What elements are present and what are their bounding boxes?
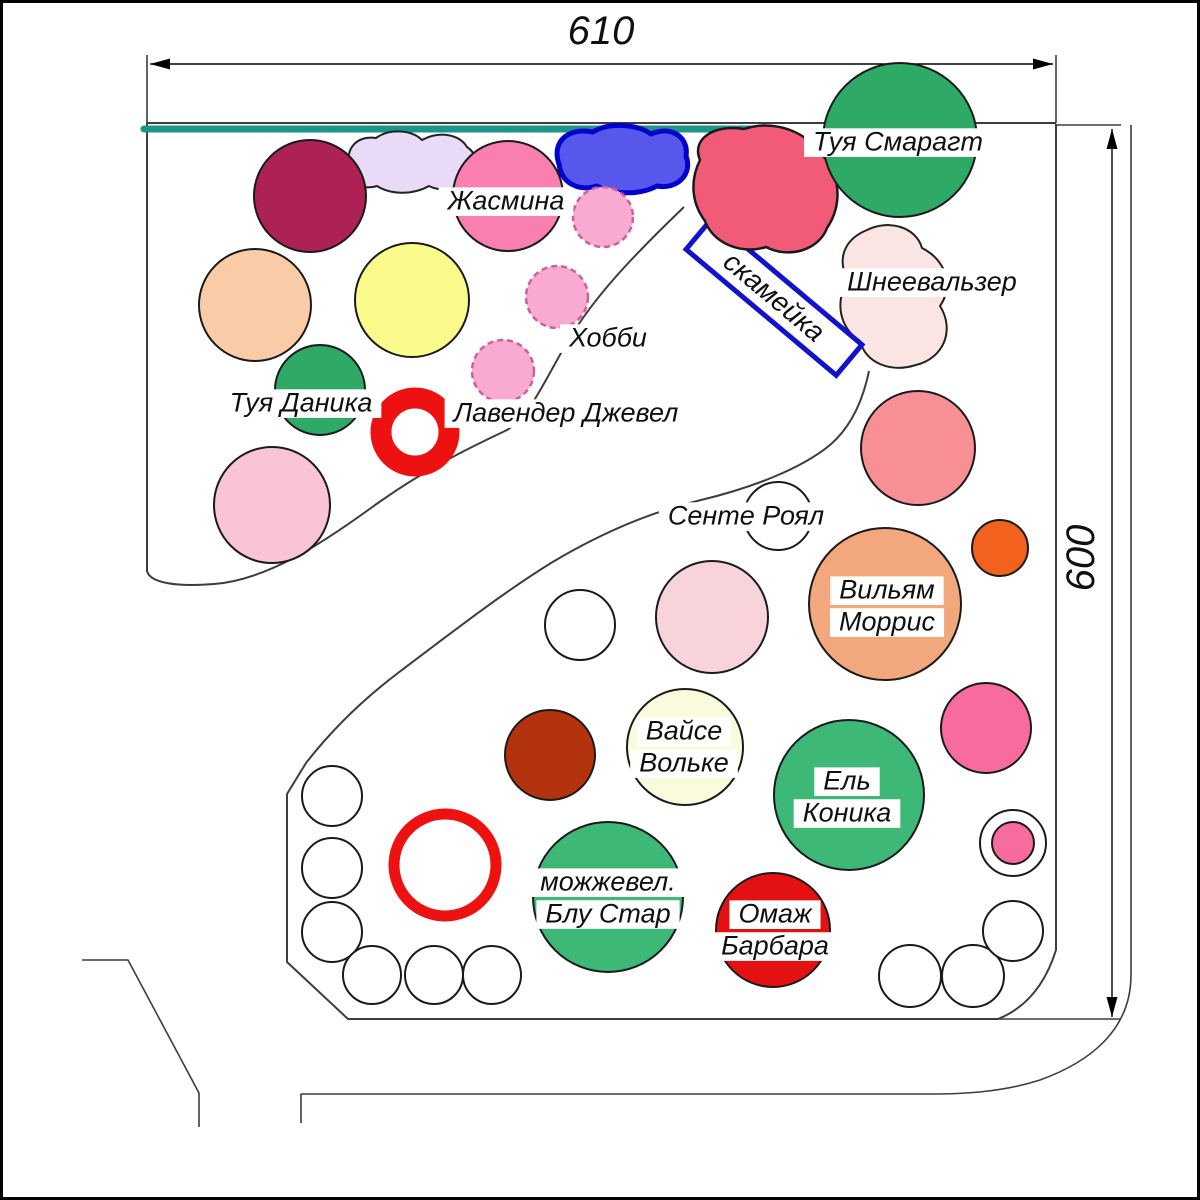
label-weisse-wolke-group: ВайсеВольке [630, 716, 738, 778]
label-zhasmina-group: Жасмина [439, 185, 574, 215]
label-schneewalzer-group: Шнеевальзер [838, 266, 1026, 296]
hobby-shrub-2 [526, 266, 588, 328]
white-shrub-mid [545, 590, 615, 660]
label-tuya-smaragd: Туя Смарагт [813, 126, 983, 156]
white-shrub-bl-1 [302, 766, 362, 826]
dimension-width-arrow-end [1033, 59, 1053, 70]
white-shrub-bl-4 [343, 946, 401, 1004]
label-homage-barbara-group: ОмажБарбара [712, 899, 838, 961]
label-weisse-wolke: ВайсеВольке [639, 716, 729, 778]
pale-pink-shrub [656, 561, 768, 673]
white-shrub-br-3 [983, 901, 1043, 961]
dimension-height-arrow-start [1107, 129, 1118, 149]
label-zhasmina: Жасмина [446, 185, 565, 215]
blue-blob [557, 125, 688, 192]
bench-label: скамейка [718, 246, 831, 348]
peach-shrub [199, 249, 311, 361]
label-lavender-jewel: Лавендер Джевел [452, 397, 679, 427]
label-schneewalzer: Шнеевальзер [847, 266, 1017, 296]
ring-inner-pink [992, 822, 1034, 864]
brick-shrub [505, 710, 595, 800]
label-william-morris-group: ВильямМоррис [830, 575, 944, 637]
white-shrub-bl-6 [463, 946, 521, 1004]
label-william-morris: ВильямМоррис [839, 575, 936, 637]
maroon-shrub [254, 140, 366, 252]
hot-pink-shrub [941, 683, 1031, 773]
red-ring-lower [394, 814, 496, 916]
garden-plan-page: 610600скамейкаЖасминаХоббиЛавендер Джеве… [0, 0, 1200, 1200]
label-tuya-smaragd-group: Туя Смарагт [804, 126, 992, 156]
label-tuya-danika: Туя Даника [230, 387, 373, 417]
dimension-height-label: 600 [1059, 525, 1103, 592]
label-hobby: Хобби [568, 322, 647, 352]
orange-shrub [972, 520, 1028, 576]
label-sente-royal: Сенте Роял [668, 500, 824, 530]
white-shrub-br-1 [879, 945, 941, 1007]
red-ring-upper [381, 398, 449, 466]
label-hobby-group: Хобби [560, 322, 656, 352]
label-juniper-blue-star-group: можжевел.Блу Стар [531, 867, 684, 929]
label-juniper-blue-star: можжевел.Блу Стар [540, 867, 675, 929]
road-left [82, 960, 199, 1127]
pink-shrub-left [214, 447, 330, 563]
dimension-width-label: 610 [568, 9, 635, 53]
white-shrub-bl-2 [302, 838, 362, 898]
hobby-shrub-3 [472, 340, 534, 402]
label-sente-royal-group: Сенте Роял [659, 500, 833, 530]
hobby-shrub-1 [573, 187, 633, 247]
yellow-shrub [355, 243, 469, 357]
garden-plan-drawing: 610600скамейкаЖасминаХоббиЛавендер Джеве… [0, 0, 1200, 1200]
label-tuya-danika-group: Туя Даника [221, 387, 382, 417]
label-lavender-jewel-group: Лавендер Джевел [445, 397, 688, 427]
dimension-height-arrow-end [1107, 997, 1118, 1017]
salmon-shrub [861, 391, 975, 505]
dimension-width-arrow-start [150, 59, 170, 70]
white-shrub-bl-5 [405, 946, 463, 1004]
